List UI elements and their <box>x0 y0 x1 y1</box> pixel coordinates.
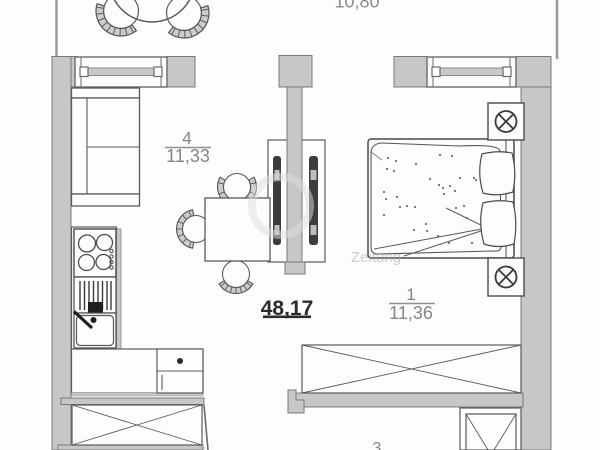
svg-text:10,80: 10,80 <box>334 0 379 12</box>
svg-text:Zeitung: Zeitung <box>351 249 401 266</box>
svg-text:3: 3 <box>373 440 382 450</box>
svg-text:11,36: 11,36 <box>389 303 433 323</box>
svg-text:1: 1 <box>406 285 415 304</box>
svg-text:4: 4 <box>182 128 192 148</box>
svg-text:11,33: 11,33 <box>166 146 210 166</box>
